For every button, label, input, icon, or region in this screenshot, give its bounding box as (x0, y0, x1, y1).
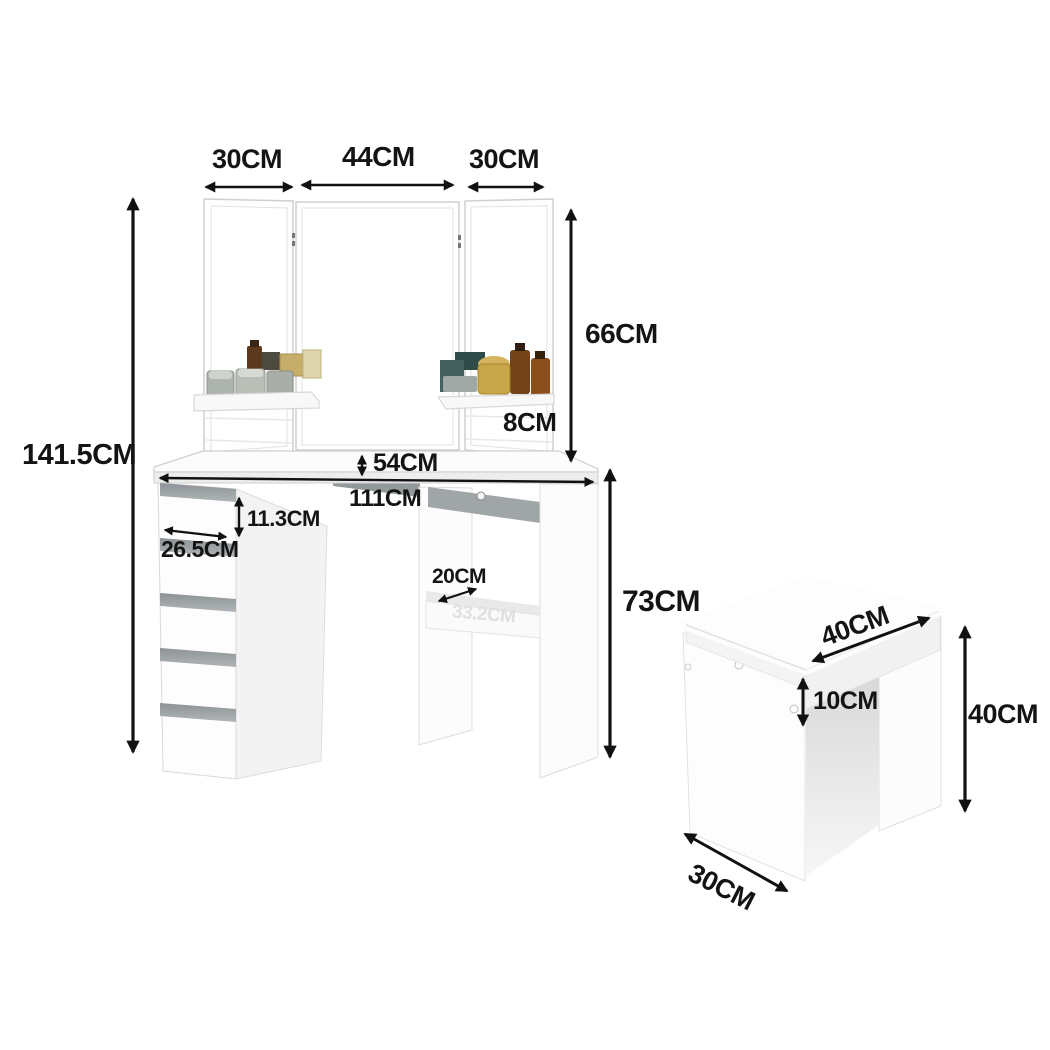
dim-label-desk-height: 73CM (622, 587, 700, 617)
shelf-watermark-text: 33.2CM (451, 602, 516, 626)
screw-hole (685, 664, 691, 670)
trifold-mirror (204, 199, 553, 459)
screw-hole (790, 705, 798, 713)
dim-label-desk-width: 111CM (349, 487, 421, 511)
dim-label-stool-cushion-height: 10CM (813, 689, 878, 714)
dim-label-drawer-width: 26.5CM (161, 538, 239, 561)
dim-label-mirror-right-width: 30CM (469, 146, 539, 173)
dim-label-total-height: 141.5CM (22, 441, 136, 470)
screw-hole (477, 492, 485, 500)
dim-label-shelf-depth: 8CM (503, 409, 556, 435)
dim-label-stool-height: 40CM (968, 701, 1038, 728)
dim-label-mirror-left-width: 30CM (212, 146, 282, 173)
dim-label-mirror-height: 66CM (585, 320, 658, 348)
stool (683, 581, 941, 881)
dim-label-desk-depth: 54CM (373, 451, 438, 476)
dim-label-mirror-center-width: 44CM (342, 143, 415, 171)
dim-label-leg-shelf-depth: 20CM (432, 566, 486, 587)
desk-legs (419, 484, 598, 778)
dim-label-drawer-height: 11.3CM (247, 508, 320, 530)
product-dimension-image: 30CM 44CM 30CM 66CM 8CM 141.5CM 54CM 111… (0, 0, 1050, 1050)
